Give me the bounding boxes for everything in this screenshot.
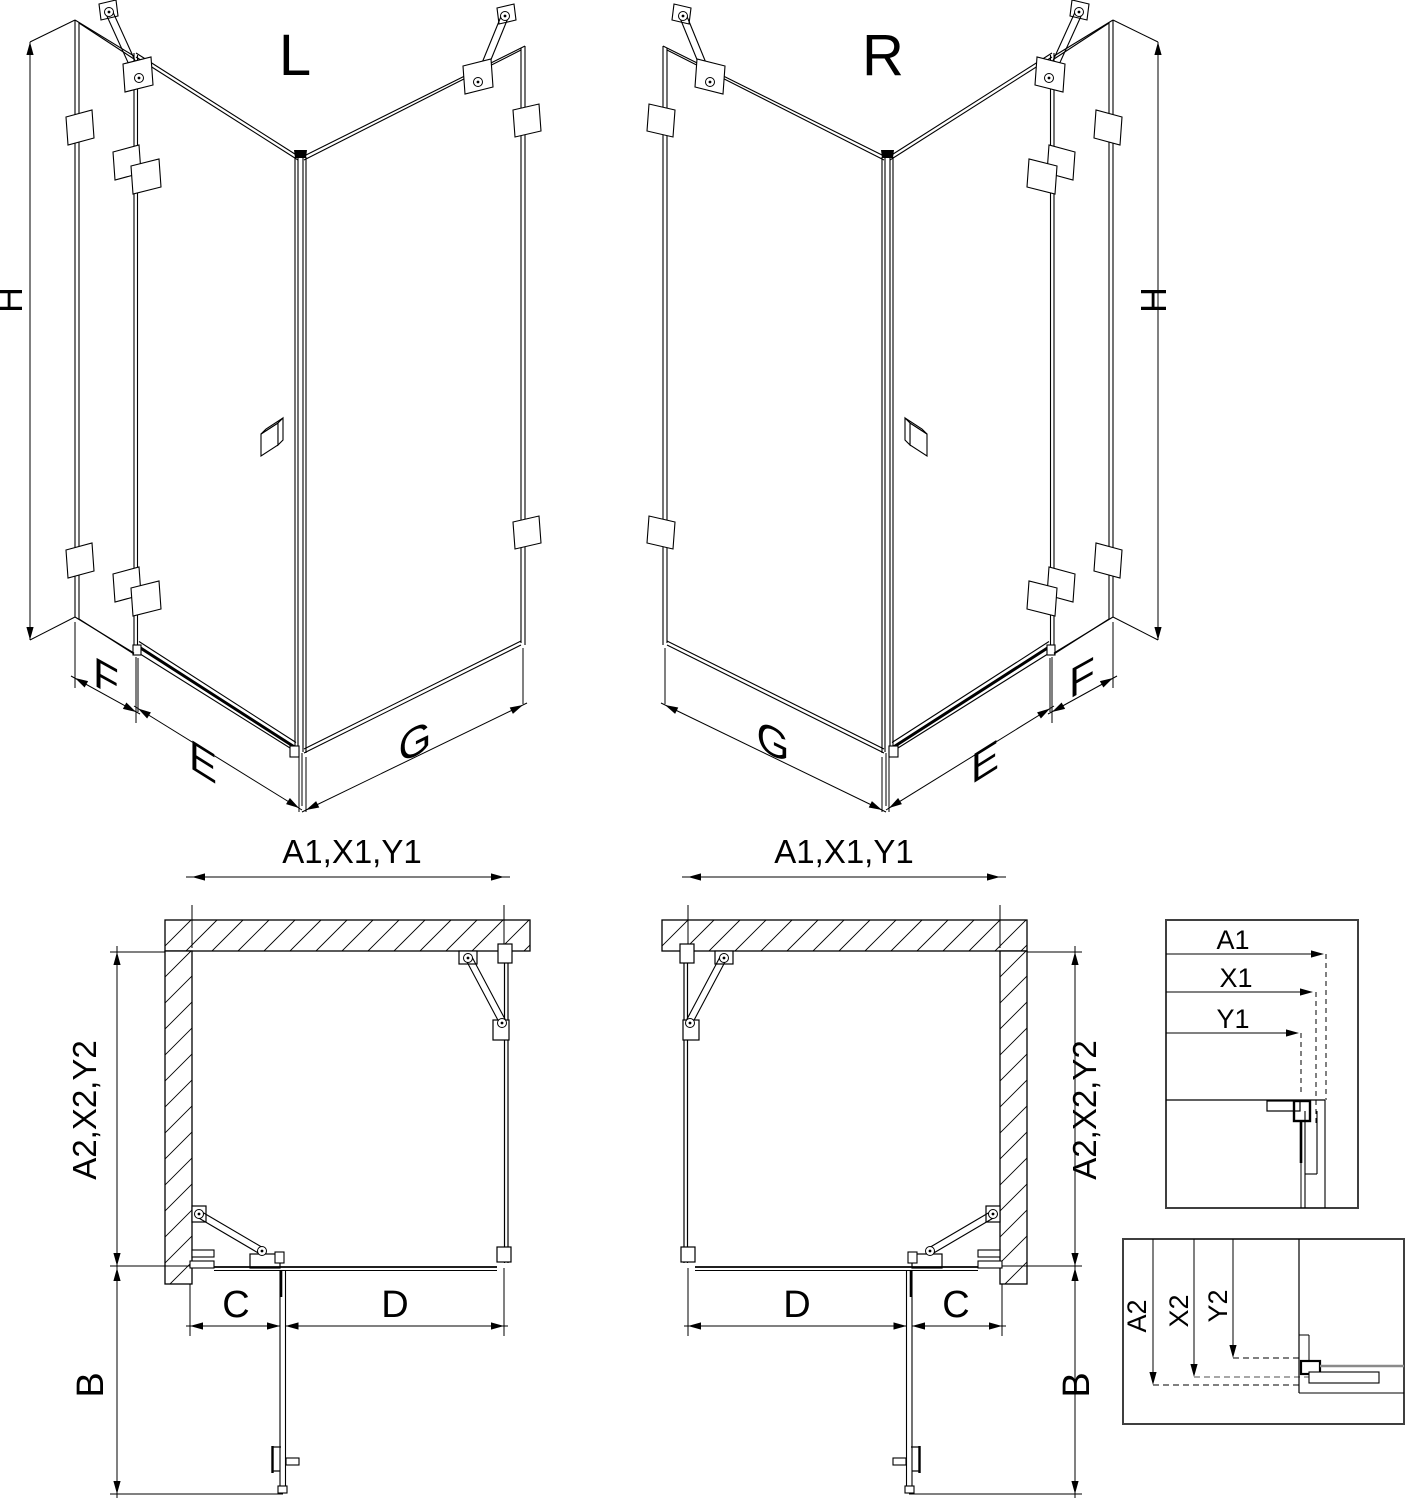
label-door-right: E [971, 729, 999, 794]
label-door-left: E [189, 729, 217, 794]
label-side-depth-right: A2,X2,Y2 [1066, 1040, 1103, 1179]
variant-title-left: L [279, 23, 311, 88]
label-door-open-right: B [1056, 1372, 1098, 1397]
shower-enclosure-diagram: L R H H F E G G E F A1,X1,Y1 A1,X1,Y1 A2… [0, 0, 1410, 1502]
technical-drawing-page: L R H H F E G G E F A1,X1,Y1 A1,X1,Y1 A2… [0, 0, 1410, 1502]
label-height-right: H [1133, 287, 1174, 313]
label-side-panel-right: F [1069, 647, 1095, 709]
label-door-open-left: B [70, 1372, 112, 1397]
label-door-segment-left: C [222, 1284, 249, 1326]
label-fixed-segment-left: D [381, 1284, 408, 1326]
detail-top-row-y1: Y1 [1216, 1004, 1249, 1034]
label-fixed-segment-right: D [783, 1284, 810, 1326]
label-return-left: G [399, 711, 432, 773]
label-return-right: G [757, 711, 790, 773]
detail-bottom-row-x2: X2 [1164, 1294, 1194, 1327]
detail-bottom-row-a2: A2 [1122, 1299, 1152, 1332]
label-door-segment-right: C [942, 1284, 969, 1326]
label-side-depth-left: A2,X2,Y2 [66, 1040, 103, 1179]
detail-section-bottom [1123, 1239, 1404, 1424]
label-front-width-right: A1,X1,Y1 [774, 833, 913, 870]
label-side-panel-left: F [93, 647, 119, 709]
detail-top-row-a1: A1 [1216, 925, 1249, 955]
label-front-width-left: A1,X1,Y1 [282, 833, 421, 870]
detail-top-row-x1: X1 [1219, 963, 1252, 993]
detail-section-top [1166, 920, 1358, 1208]
detail-bottom-row-y2: Y2 [1203, 1289, 1233, 1322]
plan-view-left [0, 873, 555, 1498]
variant-title-right: R [862, 23, 904, 88]
label-height-left: H [0, 287, 30, 313]
